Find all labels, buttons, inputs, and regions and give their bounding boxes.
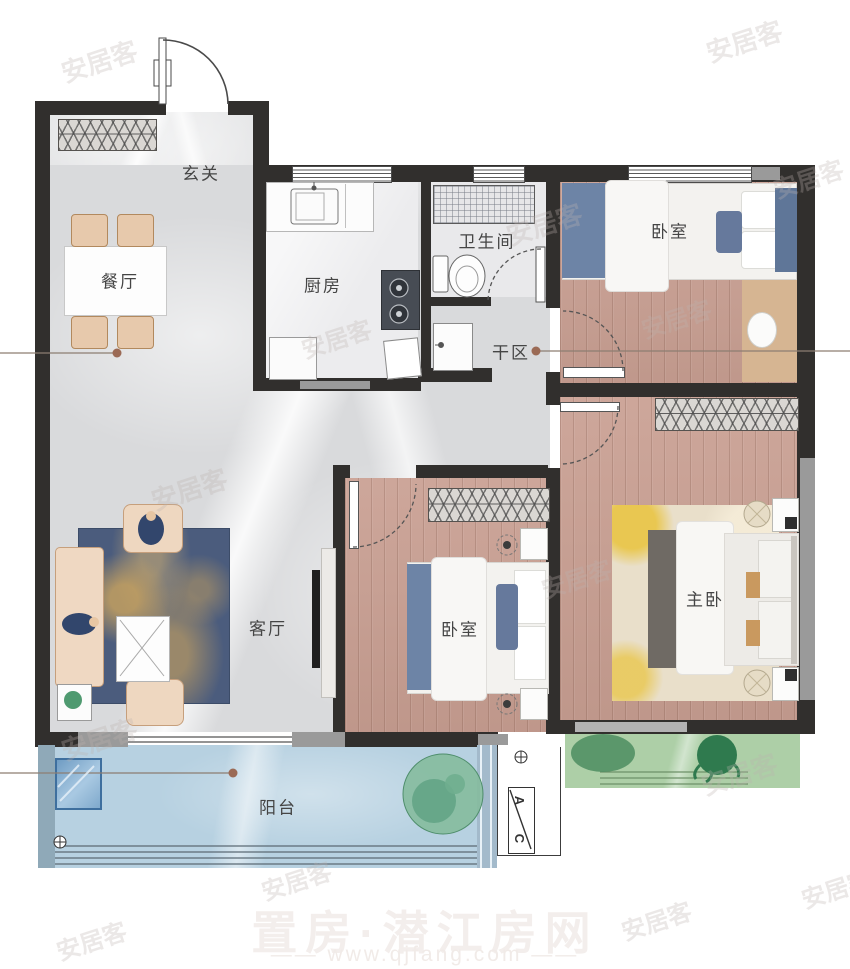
round-mat-icon bbox=[744, 501, 770, 696]
entry-door-arc bbox=[163, 40, 228, 104]
plan-linework bbox=[0, 0, 850, 969]
entry-door-leaf bbox=[159, 38, 166, 104]
master-door-arc bbox=[560, 406, 618, 464]
bathroom-door-arc bbox=[488, 249, 541, 302]
room-label-living: 客厅 bbox=[249, 615, 287, 640]
balcony-plant-icon bbox=[403, 754, 483, 834]
room-label-kitchen: 厨房 bbox=[304, 272, 342, 297]
person-figure bbox=[62, 511, 164, 635]
footer-watermark-url: —— www.qjfang.com —— bbox=[271, 943, 580, 967]
basin-faucet-icon bbox=[435, 343, 444, 348]
room-label-dry-area: 干区 bbox=[492, 339, 530, 364]
bathroom-door-leaf bbox=[536, 247, 545, 302]
ac-diagonal bbox=[510, 790, 531, 849]
green-platform-plants bbox=[571, 734, 739, 782]
bedroom-top-door-arc bbox=[563, 311, 623, 371]
room-label-bedroom-mid: 卧室 bbox=[441, 616, 479, 641]
leader-dot-left bbox=[113, 349, 122, 358]
toilet-icon bbox=[433, 255, 485, 297]
room-label-dining: 餐厅 bbox=[101, 268, 139, 293]
bedroom-mid-door-arc bbox=[353, 484, 416, 547]
room-label-balcony: 阳台 bbox=[259, 794, 297, 819]
bedside-lamp-icon bbox=[497, 535, 517, 714]
green-platform-steps bbox=[600, 772, 748, 784]
footer-watermark-dash-right: —— bbox=[531, 943, 579, 966]
stove-burners-icon bbox=[390, 279, 408, 323]
room-label-entry: 玄关 bbox=[182, 160, 220, 185]
floor-plan: A C bbox=[0, 0, 850, 969]
leader-dot-balcony bbox=[229, 769, 238, 778]
coffee-table-cross bbox=[120, 620, 164, 676]
footer-watermark-dash-left: —— bbox=[271, 943, 319, 966]
sliding-door-track bbox=[128, 737, 292, 742]
balcony-fence bbox=[55, 846, 477, 864]
kitchen-sink-icon bbox=[291, 182, 338, 224]
room-label-bedroom-top: 卧室 bbox=[651, 218, 689, 243]
room-label-bathroom: 卫生间 bbox=[459, 228, 516, 253]
footer-watermark-url-text: www.qjfang.com bbox=[328, 943, 523, 966]
side-table-plant-icon bbox=[64, 691, 82, 709]
room-label-master: 主卧 bbox=[686, 586, 724, 611]
leader-dot-dry-area bbox=[532, 347, 541, 356]
washer-glass-streaks bbox=[58, 765, 94, 801]
